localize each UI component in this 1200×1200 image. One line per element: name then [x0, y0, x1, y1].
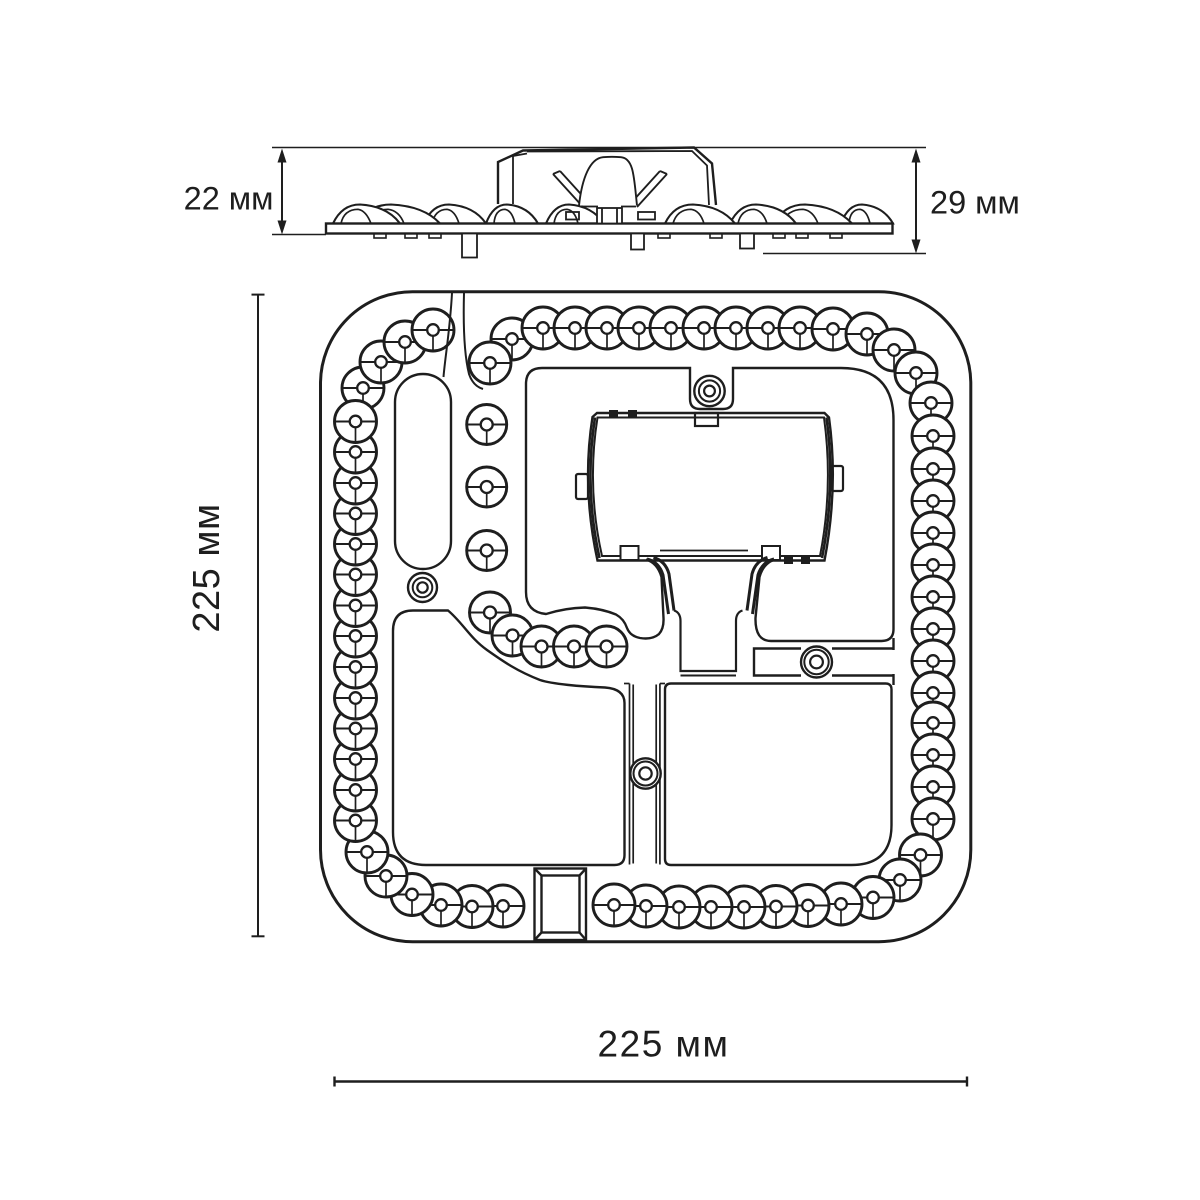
svg-text:29 мм: 29 мм — [930, 185, 1020, 221]
svg-text:22 мм: 22 мм — [184, 181, 274, 217]
svg-text:225 мм: 225 мм — [598, 1024, 730, 1065]
svg-text:225 мм: 225 мм — [186, 503, 228, 632]
